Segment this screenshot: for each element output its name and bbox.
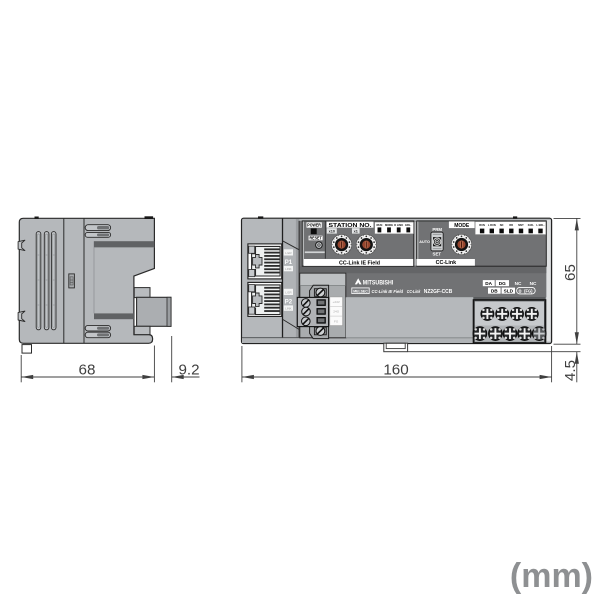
svg-text:L ER: L ER [285, 291, 291, 295]
svg-text:FG: FG [334, 319, 339, 323]
svg-text:CC-Link IE Field: CC-Link IE Field [339, 260, 380, 266]
svg-text:P2: P2 [285, 299, 293, 305]
svg-text:SET: SET [433, 252, 442, 257]
svg-text:(FG): (FG) [524, 289, 533, 294]
svg-text:SLD: SLD [504, 289, 514, 294]
svg-text:x10: x10 [329, 230, 335, 234]
svg-text:L RUN: L RUN [488, 223, 496, 227]
svg-text:CC-Link: CC-Link [407, 289, 421, 294]
svg-text:9.2: 9.2 [178, 362, 199, 379]
svg-text:RUN: RUN [479, 223, 485, 227]
svg-text:PRM: PRM [432, 227, 442, 232]
svg-text:(mm): (mm) [510, 557, 593, 595]
svg-text:LINK: LINK [285, 307, 291, 311]
svg-text:RD: RD [509, 223, 513, 227]
svg-text:L ERL.: L ERL. [536, 223, 544, 227]
svg-text:MST: MST [518, 223, 524, 227]
svg-text:RESET: RESET [310, 236, 323, 241]
svg-text:4.5: 4.5 [562, 360, 579, 381]
svg-text:AUTO: AUTO [419, 239, 430, 244]
svg-text:x1: x1 [354, 230, 358, 234]
svg-text:MELSEC: MELSEC [353, 289, 368, 293]
svg-text:68: 68 [79, 362, 96, 379]
svg-text:P1: P1 [285, 260, 293, 266]
svg-text:ERL.: ERL. [405, 223, 411, 227]
svg-text:NZ2GF-CCB: NZ2GF-CCB [424, 289, 453, 295]
svg-text:160: 160 [383, 362, 408, 379]
svg-text:CC-Link IE Field: CC-Link IE Field [372, 289, 404, 294]
svg-text:L ER: L ER [285, 251, 291, 255]
svg-text:POWER: POWER [307, 223, 321, 228]
svg-text:DG: DG [499, 281, 506, 286]
svg-text:SD: SD [500, 223, 504, 227]
svg-text:DB: DB [491, 289, 498, 294]
svg-text:D.RL: D.RL [528, 223, 534, 227]
svg-text:+24V: +24V [333, 300, 341, 304]
svg-text:MODE: MODE [454, 223, 470, 229]
svg-text:NC: NC [530, 281, 537, 286]
svg-text:LINK: LINK [285, 267, 291, 271]
svg-text:24G: 24G [333, 310, 339, 314]
svg-text:DA: DA [485, 281, 492, 286]
svg-text:MITSUBISHI: MITSUBISHI [363, 281, 394, 287]
svg-text:CC-Link: CC-Link [436, 260, 457, 266]
svg-text:65: 65 [562, 264, 579, 281]
svg-text:NC: NC [515, 281, 522, 286]
svg-text:MODE: MODE [385, 223, 393, 227]
svg-text:RUN: RUN [376, 223, 382, 227]
svg-text:STATION NO.: STATION NO. [329, 223, 373, 229]
svg-text:D LINK: D LINK [394, 223, 403, 227]
